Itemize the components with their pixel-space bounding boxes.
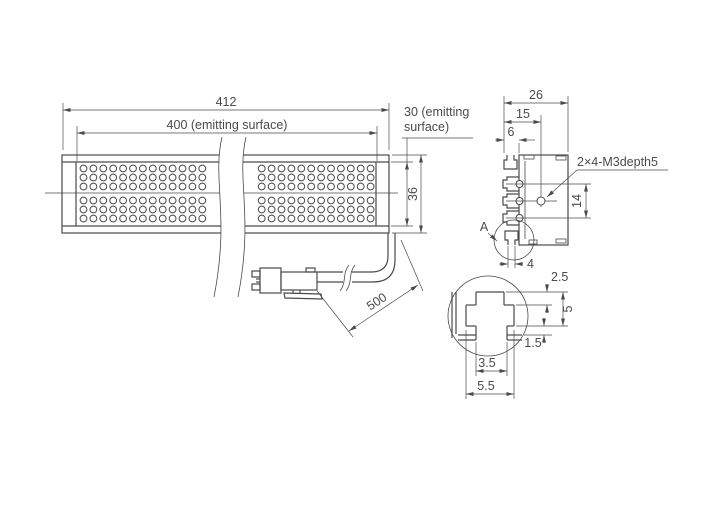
connector-plug [260, 268, 281, 293]
led-hole [159, 197, 166, 204]
led-hole [338, 206, 345, 213]
led-hole [90, 183, 97, 190]
led-hole [159, 183, 166, 190]
dim-26-label: 26 [529, 88, 543, 102]
led-hole [130, 183, 137, 190]
led-hole [149, 174, 156, 181]
led-hole [100, 174, 107, 181]
led-hole [120, 183, 127, 190]
led-hole [169, 215, 176, 222]
detail-view-circle [448, 276, 528, 356]
led-hole [90, 174, 97, 181]
led-hole [140, 174, 147, 181]
led-hole [318, 183, 325, 190]
led-hole [100, 206, 107, 213]
led-hole [328, 165, 335, 172]
led-hole [328, 197, 335, 204]
detail-a-leader [488, 233, 497, 241]
cable-break-left [340, 265, 349, 291]
led-hole [278, 183, 285, 190]
led-hole [120, 215, 127, 222]
led-hole [110, 197, 117, 204]
led-hole [159, 165, 166, 172]
led-hole [149, 183, 156, 190]
led-hole [159, 215, 166, 222]
led-hole [328, 174, 335, 181]
led-hole [80, 183, 87, 190]
led-hole [318, 165, 325, 172]
led-hole [149, 197, 156, 204]
led-hole [318, 174, 325, 181]
led-hole [189, 206, 196, 213]
led-hole [169, 165, 176, 172]
led-hole [169, 174, 176, 181]
led-hole [308, 197, 315, 204]
led-hole [179, 174, 186, 181]
led-hole [308, 183, 315, 190]
led-hole [338, 183, 345, 190]
led-hole [199, 165, 206, 172]
led-hole [347, 206, 354, 213]
led-hole [159, 174, 166, 181]
led-hole [130, 206, 137, 213]
led-hole [367, 165, 374, 172]
led-hole [357, 174, 364, 181]
led-hole [258, 206, 265, 213]
led-hole [179, 183, 186, 190]
led-hole [347, 197, 354, 204]
technical-drawing: 412 400 (emitting surface) 30 (emitting … [0, 0, 715, 517]
connector [252, 268, 322, 299]
led-hole [169, 206, 176, 213]
led-hole [120, 206, 127, 213]
led-hole [199, 206, 206, 213]
led-hole [357, 215, 364, 222]
led-hole [189, 215, 196, 222]
led-hole [80, 165, 87, 172]
dim-36-label: 36 [406, 187, 420, 201]
led-hole [298, 215, 305, 222]
led-hole [268, 183, 275, 190]
led-hole [100, 183, 107, 190]
led-hole [357, 183, 364, 190]
ext-500-right [401, 240, 423, 291]
led-hole [298, 197, 305, 204]
cable-break-right [346, 265, 355, 291]
cable [317, 233, 395, 291]
detail-a-label: A [480, 220, 489, 234]
led-hole [130, 197, 137, 204]
led-hole [258, 197, 265, 204]
hole-note-leader [547, 170, 577, 197]
profile-top-groove [504, 155, 517, 169]
led-hole [288, 215, 295, 222]
drawing-canvas: 412 400 (emitting surface) 30 (emitting … [0, 0, 715, 517]
led-hole [199, 197, 206, 204]
led-hole [338, 197, 345, 204]
led-hole [140, 197, 147, 204]
led-hole [288, 174, 295, 181]
led-hole [120, 165, 127, 172]
led-hole [298, 206, 305, 213]
led-hole [149, 215, 156, 222]
led-hole [357, 165, 364, 172]
led-hole [278, 165, 285, 172]
led-hole [278, 174, 285, 181]
led-hole [268, 215, 275, 222]
emitting-note-line2: surface) [404, 120, 449, 134]
led-hole [288, 197, 295, 204]
dim-5-label: 5 [561, 305, 575, 312]
led-hole [308, 206, 315, 213]
cable-line-top [352, 233, 388, 272]
dim-6-label: 6 [508, 125, 515, 139]
led-hole [140, 165, 147, 172]
led-hole [298, 165, 305, 172]
led-hole [298, 174, 305, 181]
profile-bottom-groove [505, 231, 518, 245]
section-view: A 2×4-M3depth5 26 15 6 14 4 [480, 88, 668, 271]
led-hole [347, 215, 354, 222]
led-hole [179, 165, 186, 172]
connector-strain-bar [284, 293, 322, 299]
led-hole [308, 215, 315, 222]
led-hole [288, 165, 295, 172]
led-hole [347, 183, 354, 190]
led-hole [80, 197, 87, 204]
led-hole [80, 174, 87, 181]
led-hole [268, 174, 275, 181]
dim-5-5-label: 5.5 [477, 379, 494, 393]
led-hole [357, 197, 364, 204]
profile-notch-1 [524, 155, 534, 159]
led-hole [90, 197, 97, 204]
led-hole [268, 197, 275, 204]
emitting-note-line1: 30 (emitting [404, 105, 469, 119]
ext-500-left [317, 291, 353, 337]
led-hole [318, 215, 325, 222]
led-hole [318, 197, 325, 204]
dim-14-label: 14 [570, 194, 584, 208]
led-hole [130, 165, 137, 172]
front-view: 412 400 (emitting surface) 30 (emitting … [45, 95, 473, 337]
led-hole [367, 206, 374, 213]
led-hole [140, 215, 147, 222]
body-hole [537, 197, 545, 205]
connector-tab [306, 268, 315, 272]
led-hole [169, 183, 176, 190]
led-hole [258, 174, 265, 181]
led-hole [110, 174, 117, 181]
led-hole [338, 165, 345, 172]
led-hole [90, 206, 97, 213]
connector-prong-top [252, 271, 260, 277]
led-hole [120, 197, 127, 204]
led-hole [268, 206, 275, 213]
hole-note-label: 2×4-M3depth5 [577, 155, 658, 169]
led-hole [179, 197, 186, 204]
led-hole [110, 165, 117, 172]
led-hole [130, 174, 137, 181]
led-hole [199, 215, 206, 222]
led-hole [189, 165, 196, 172]
led-hole [159, 206, 166, 213]
dim-412-label: 412 [216, 95, 237, 109]
led-hole [90, 215, 97, 222]
dim-500-label: 500 [364, 290, 389, 313]
connector-prong-bottom [252, 284, 260, 290]
dim-3-5-label: 3.5 [478, 356, 495, 370]
dimline-500 [349, 285, 418, 331]
led-hole [357, 206, 364, 213]
led-hole [140, 206, 147, 213]
led-hole [278, 215, 285, 222]
led-hole [140, 183, 147, 190]
detail-view: 2.5 5 1.5 3.5 5.5 [448, 270, 575, 399]
led-hole [308, 174, 315, 181]
led-hole [149, 165, 156, 172]
led-hole [179, 206, 186, 213]
led-hole [130, 215, 137, 222]
profile-notch-4 [529, 240, 537, 244]
led-hole [308, 165, 315, 172]
led-hole [100, 215, 107, 222]
led-hole [288, 206, 295, 213]
led-hole [278, 197, 285, 204]
profile-notch-2 [556, 156, 566, 160]
led-hole [318, 206, 325, 213]
led-hole [338, 215, 345, 222]
led-hole [110, 183, 117, 190]
led-hole [169, 197, 176, 204]
led-hole [149, 206, 156, 213]
led-hole [367, 174, 374, 181]
dim-15-label: 15 [516, 107, 530, 121]
led-hole [120, 174, 127, 181]
led-hole [80, 206, 87, 213]
led-hole [110, 206, 117, 213]
led-hole [110, 215, 117, 222]
led-hole [90, 165, 97, 172]
led-hole [258, 165, 265, 172]
led-hole [328, 183, 335, 190]
led-hole [367, 197, 374, 204]
led-hole [258, 183, 265, 190]
connector-body [281, 272, 317, 290]
dim-1-5-label: 1.5 [524, 336, 541, 350]
dim-400-label: 400 (emitting surface) [167, 118, 288, 132]
led-hole [347, 174, 354, 181]
led-hole [100, 197, 107, 204]
dim-2-5-label: 2.5 [551, 270, 568, 284]
led-hole [189, 197, 196, 204]
led-hole [199, 183, 206, 190]
led-hole [100, 165, 107, 172]
led-hole [268, 165, 275, 172]
led-hole [288, 183, 295, 190]
led-hole [298, 183, 305, 190]
led-hole [199, 174, 206, 181]
led-hole [338, 174, 345, 181]
led-hole [179, 215, 186, 222]
dim-4-label: 4 [527, 257, 534, 271]
led-hole [189, 183, 196, 190]
led-hole [367, 183, 374, 190]
led-hole [80, 215, 87, 222]
detail-profile [458, 292, 522, 340]
led-hole [278, 206, 285, 213]
profile-notch-3 [556, 239, 566, 243]
led-hole [328, 215, 335, 222]
led-hole [367, 215, 374, 222]
led-hole [347, 165, 354, 172]
led-hole [328, 206, 335, 213]
led-hole [258, 215, 265, 222]
led-hole [189, 174, 196, 181]
